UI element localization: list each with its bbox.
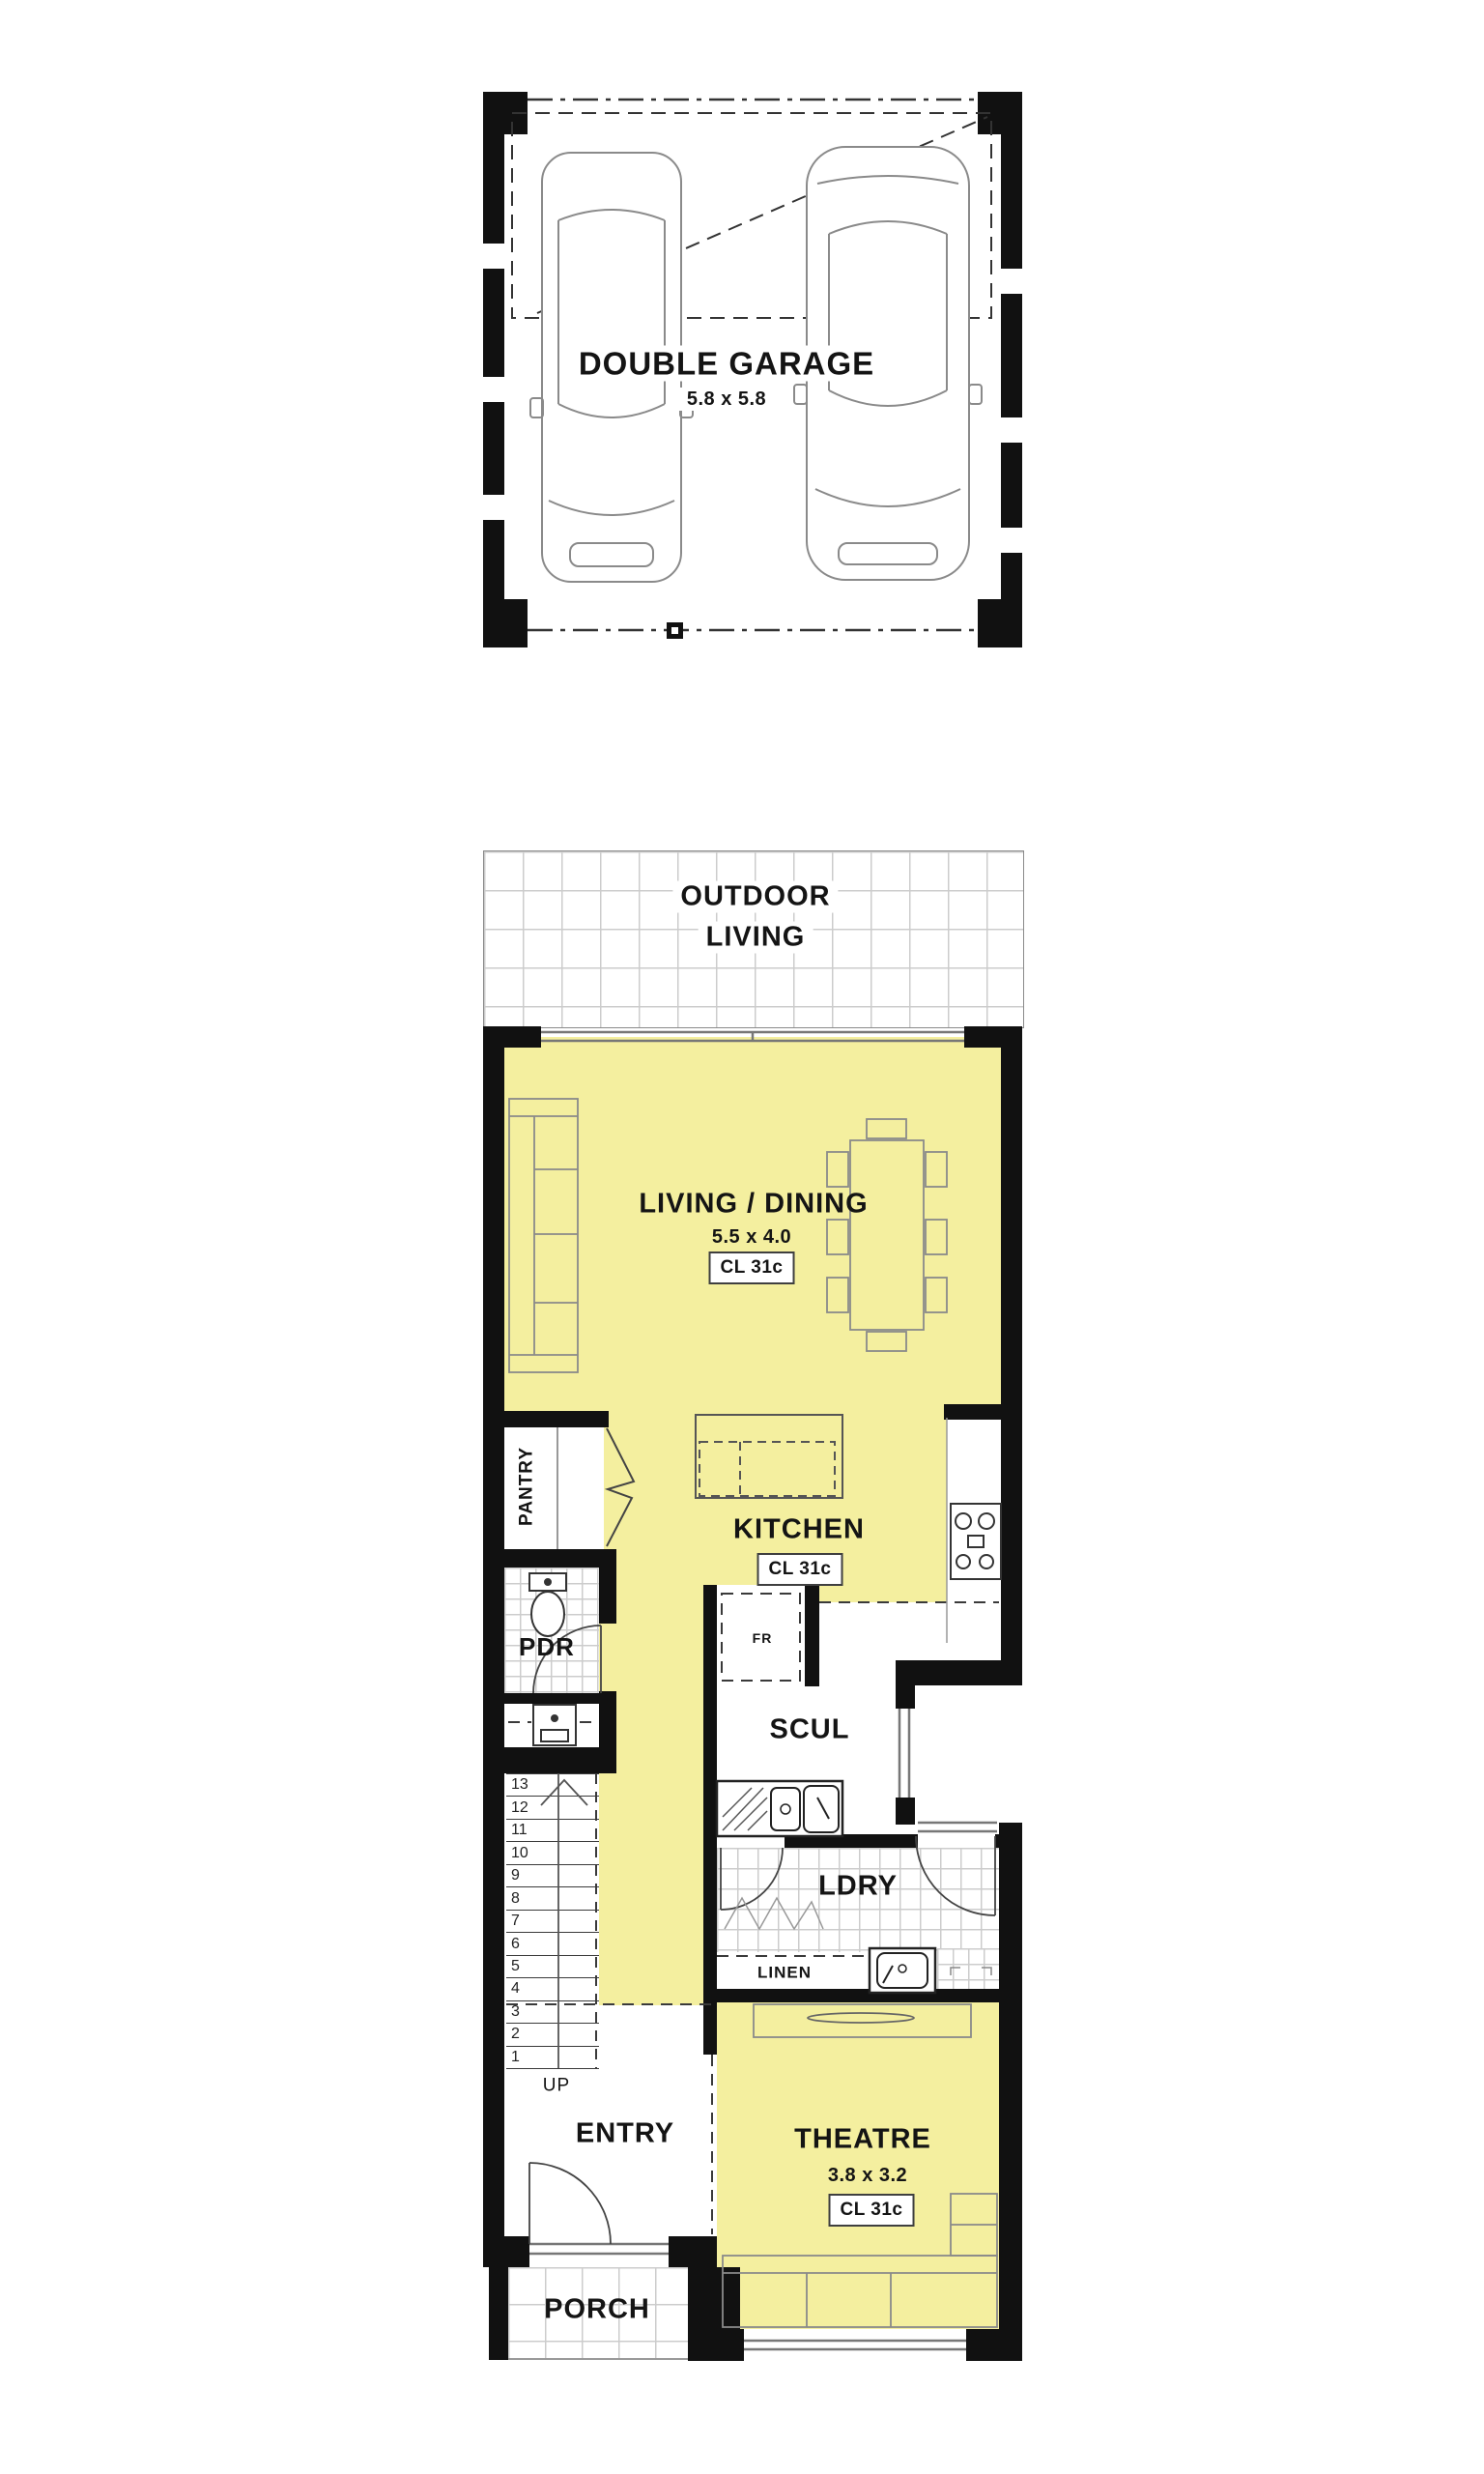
outdoor-living-label-line2: LIVING	[699, 922, 813, 954]
theatre-label: THEATRE	[794, 2126, 931, 2154]
scullery-sink-icon	[717, 1781, 842, 1836]
living-dining-ceiling-badge: CL 31c	[709, 1251, 795, 1284]
floor-plan-page: 13 12 11 10 9 8 7 6 5 4 3 2 1	[0, 0, 1484, 2474]
kitchen-ceiling-badge: CL 31c	[757, 1553, 843, 1586]
dining-table-icon	[827, 1119, 947, 1351]
powder-room-label: PDR	[519, 1634, 575, 1659]
sofa-icon	[509, 1099, 578, 1372]
theatre-dims: 3.8 x 3.2	[828, 2166, 907, 2185]
cooktop-icon	[951, 1504, 1001, 1579]
pantry-bifold-door	[607, 1428, 634, 1546]
porch-label: PORCH	[544, 2296, 650, 2324]
living-dining-label: LIVING / DINING	[639, 1191, 868, 1219]
fridge-label: FR	[753, 1631, 773, 1645]
stair-lines	[541, 1773, 596, 2068]
laundry-basket-zigzag	[725, 1898, 823, 1929]
kitchen-label: KITCHEN	[733, 1516, 865, 1544]
living-dining-dims: 5.5 x 4.0	[712, 1227, 791, 1247]
stairs-up-label: UP	[543, 2077, 570, 2095]
vanity-basin-icon	[533, 1705, 576, 1745]
pantry-label: PANTRY	[518, 1447, 536, 1526]
theatre-ceiling-badge: CL 31c	[829, 2194, 915, 2227]
kitchen-island	[696, 1415, 842, 1498]
linen-label: LINEN	[757, 1965, 812, 1981]
laundry-label: LDRY	[818, 1873, 898, 1901]
garage-title: DOUBLE GARAGE	[571, 346, 882, 382]
court-corner-marks	[951, 1968, 991, 1975]
scullery-label: SCUL	[770, 1716, 850, 1744]
toilet-icon	[529, 1573, 566, 1636]
garage-dims: 5.8 x 5.8	[679, 388, 774, 411]
entry-label: ENTRY	[576, 2120, 674, 2148]
laundry-trough-icon	[870, 1948, 935, 1993]
tv-cabinet-icon	[754, 2004, 971, 2037]
outdoor-living-label-line1: OUTDOOR	[672, 881, 838, 913]
